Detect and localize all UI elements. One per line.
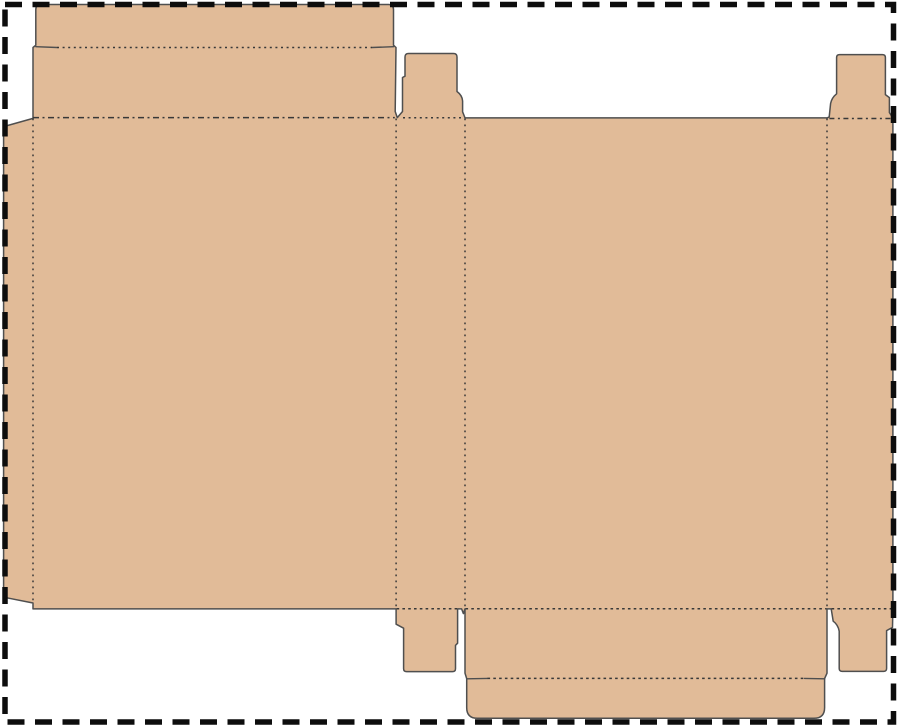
- crease-stub-top-left: [36, 47, 57, 48]
- box-dieline-diagram: [0, 0, 900, 727]
- dieline-cut-outline: [4, 5, 893, 719]
- dieline-canvas: [0, 0, 900, 727]
- crease-stub-top-right: [372, 47, 394, 48]
